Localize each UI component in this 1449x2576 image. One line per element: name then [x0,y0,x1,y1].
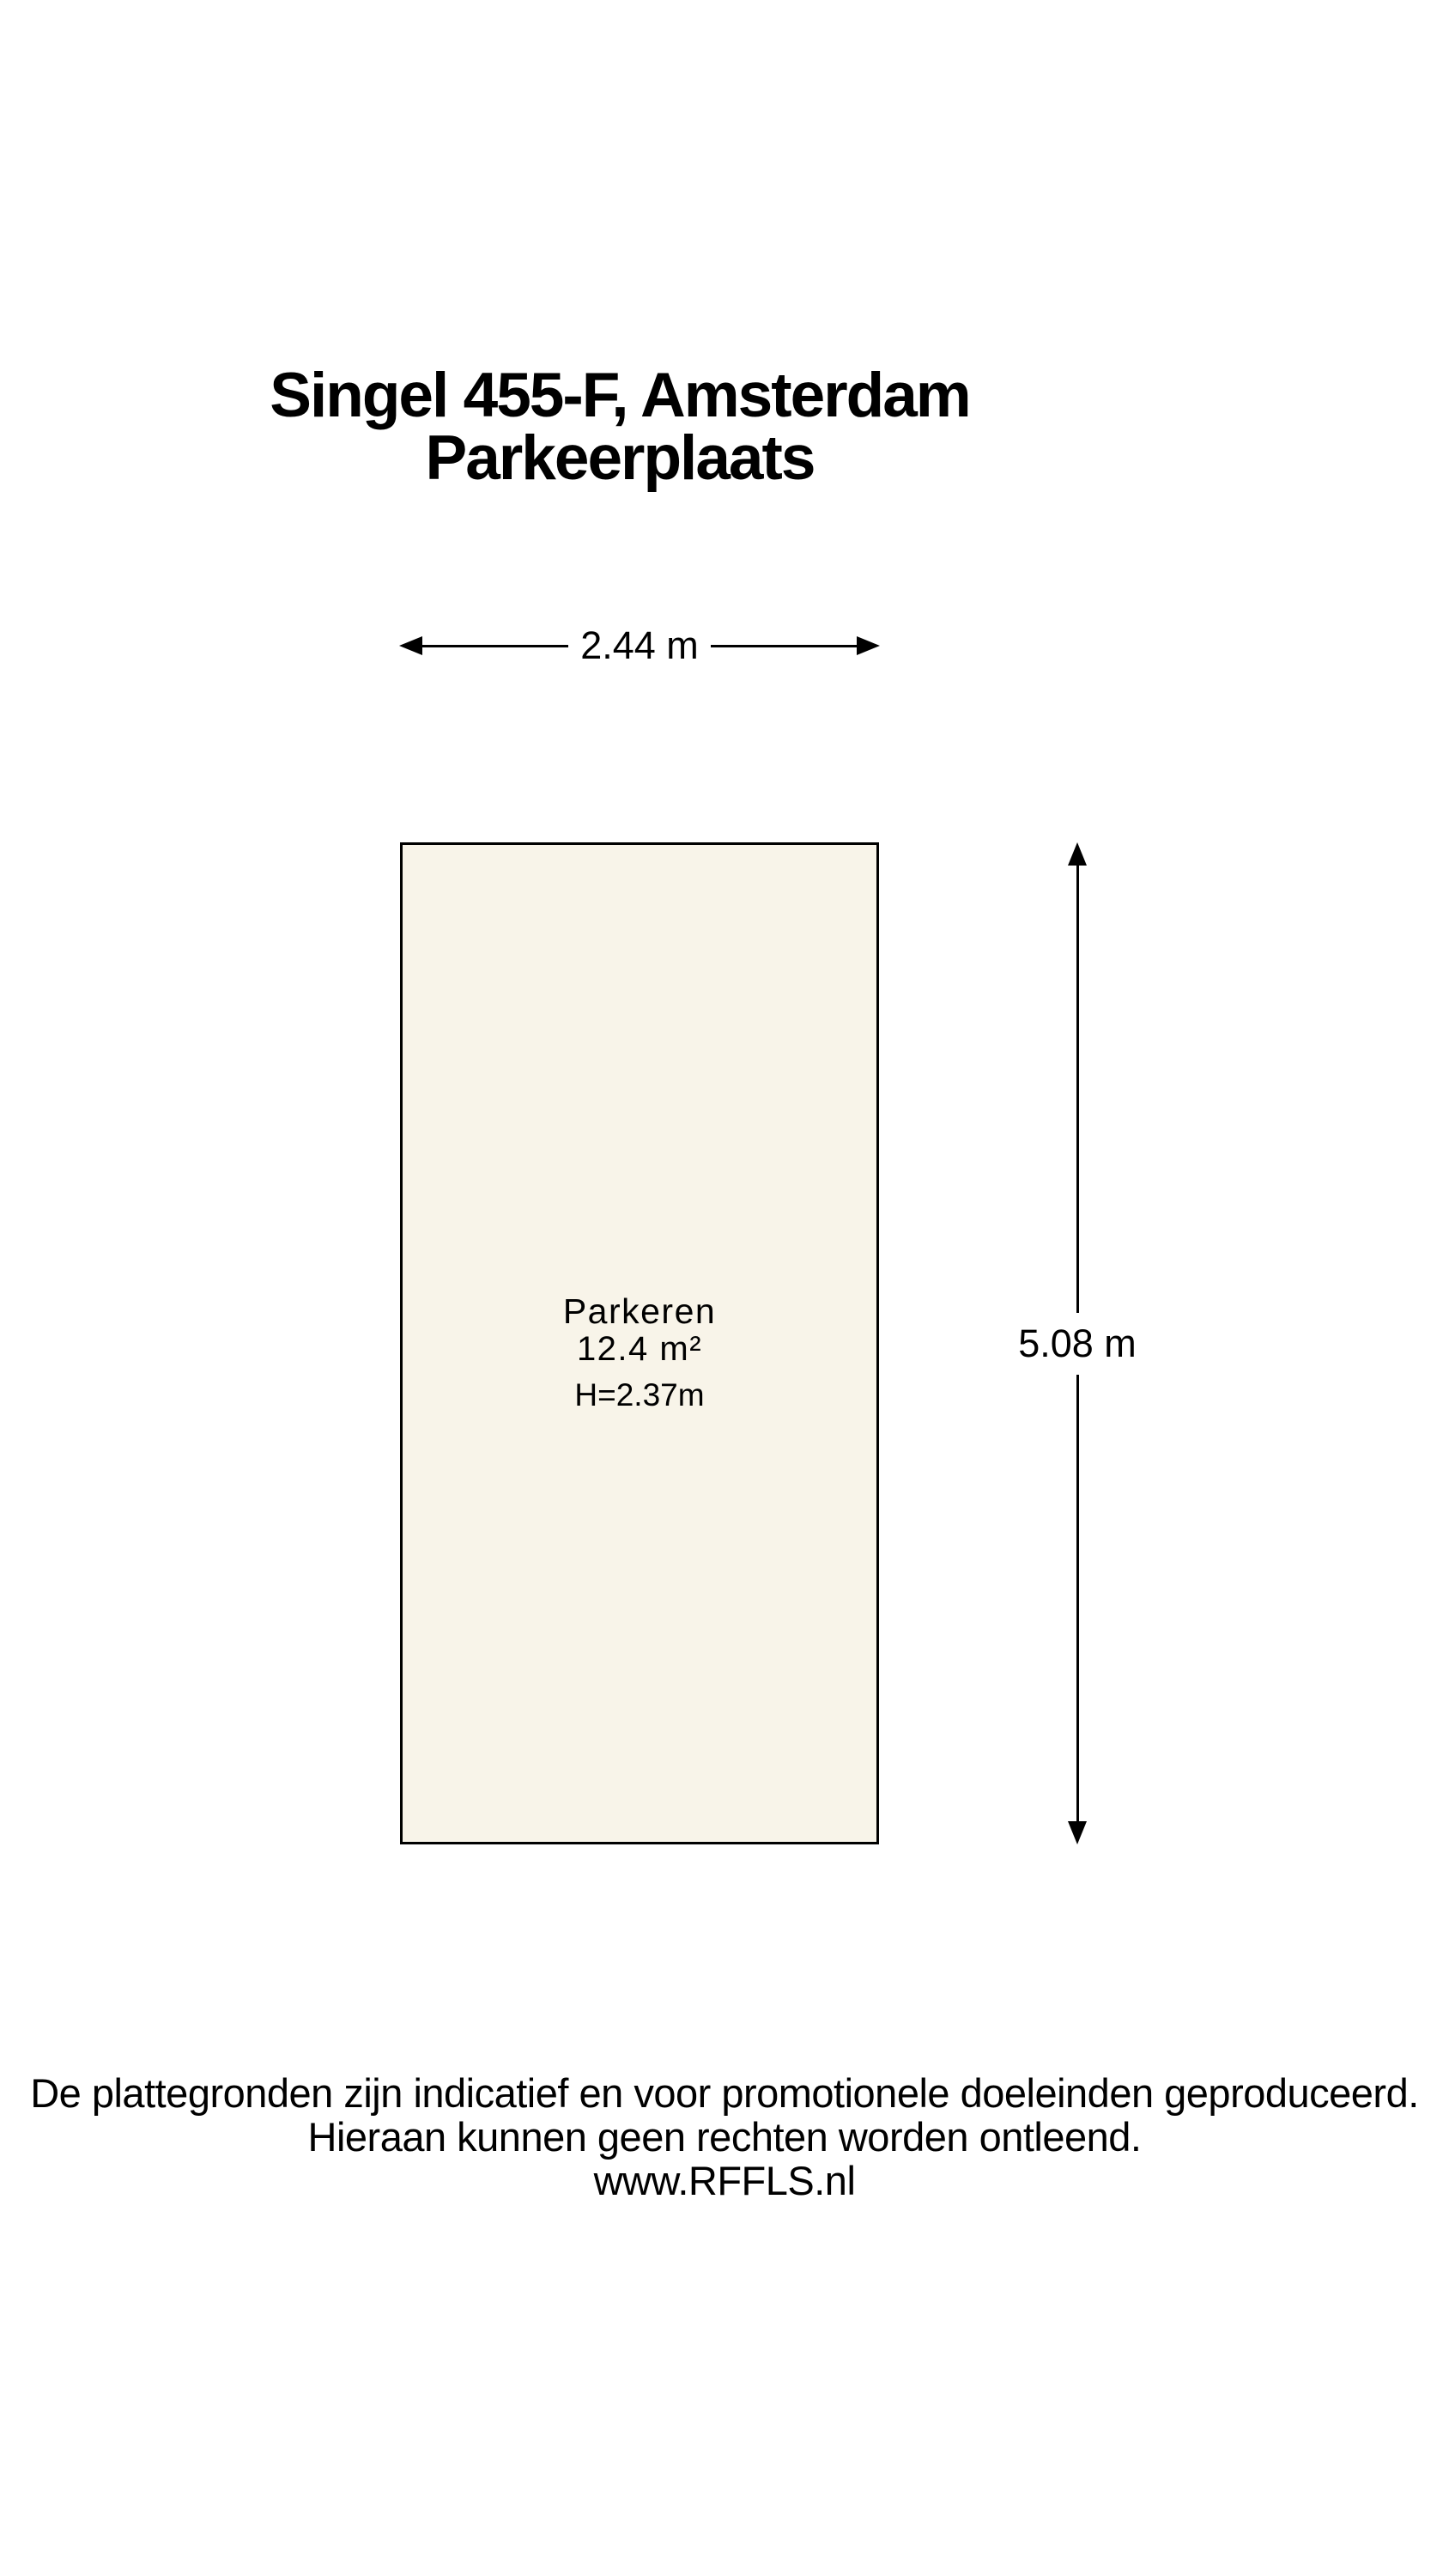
width-dimension-line [711,645,857,647]
room-name: Parkeren [403,1292,876,1330]
room-labels: Parkeren 12.4 m² H=2.37m [403,1292,876,1413]
depth-dimension: 5.08 m [1017,842,1137,1844]
parking-space-room: Parkeren 12.4 m² H=2.37m [400,842,879,1844]
floorplan-page: { "title": { "address": "Singel 455-F, A… [0,0,1449,2576]
plan-title-subtitle: Parkeerplaats [19,427,1221,489]
room-area: 12.4 m² [403,1330,876,1368]
plan-title: Singel 455-F, Amsterdam Parkeerplaats [19,364,1221,489]
width-dimension-line [422,645,568,647]
depth-dimension-label: 5.08 m [1018,1313,1137,1375]
depth-dimension-line [1076,866,1079,1313]
disclaimer: De plattegronden zijn indicatief en voor… [0,2071,1449,2202]
arrowhead-right-icon [857,636,880,655]
disclaimer-line-2: Hieraan kunnen geen rechten worden ontle… [0,2115,1449,2159]
arrowhead-down-icon [1068,1821,1087,1844]
disclaimer-line-1: De plattegronden zijn indicatief en voor… [0,2071,1449,2115]
arrowhead-up-icon [1068,842,1087,866]
depth-dimension-line [1076,1375,1079,1822]
room-ceiling-height: H=2.37m [403,1378,876,1413]
plan-title-address: Singel 455-F, Amsterdam [19,364,1221,427]
width-dimension: 2.44 m [399,627,880,665]
arrowhead-left-icon [399,636,422,655]
width-dimension-label: 2.44 m [568,627,711,665]
website-text: www.RFFLS.nl [0,2159,1449,2202]
